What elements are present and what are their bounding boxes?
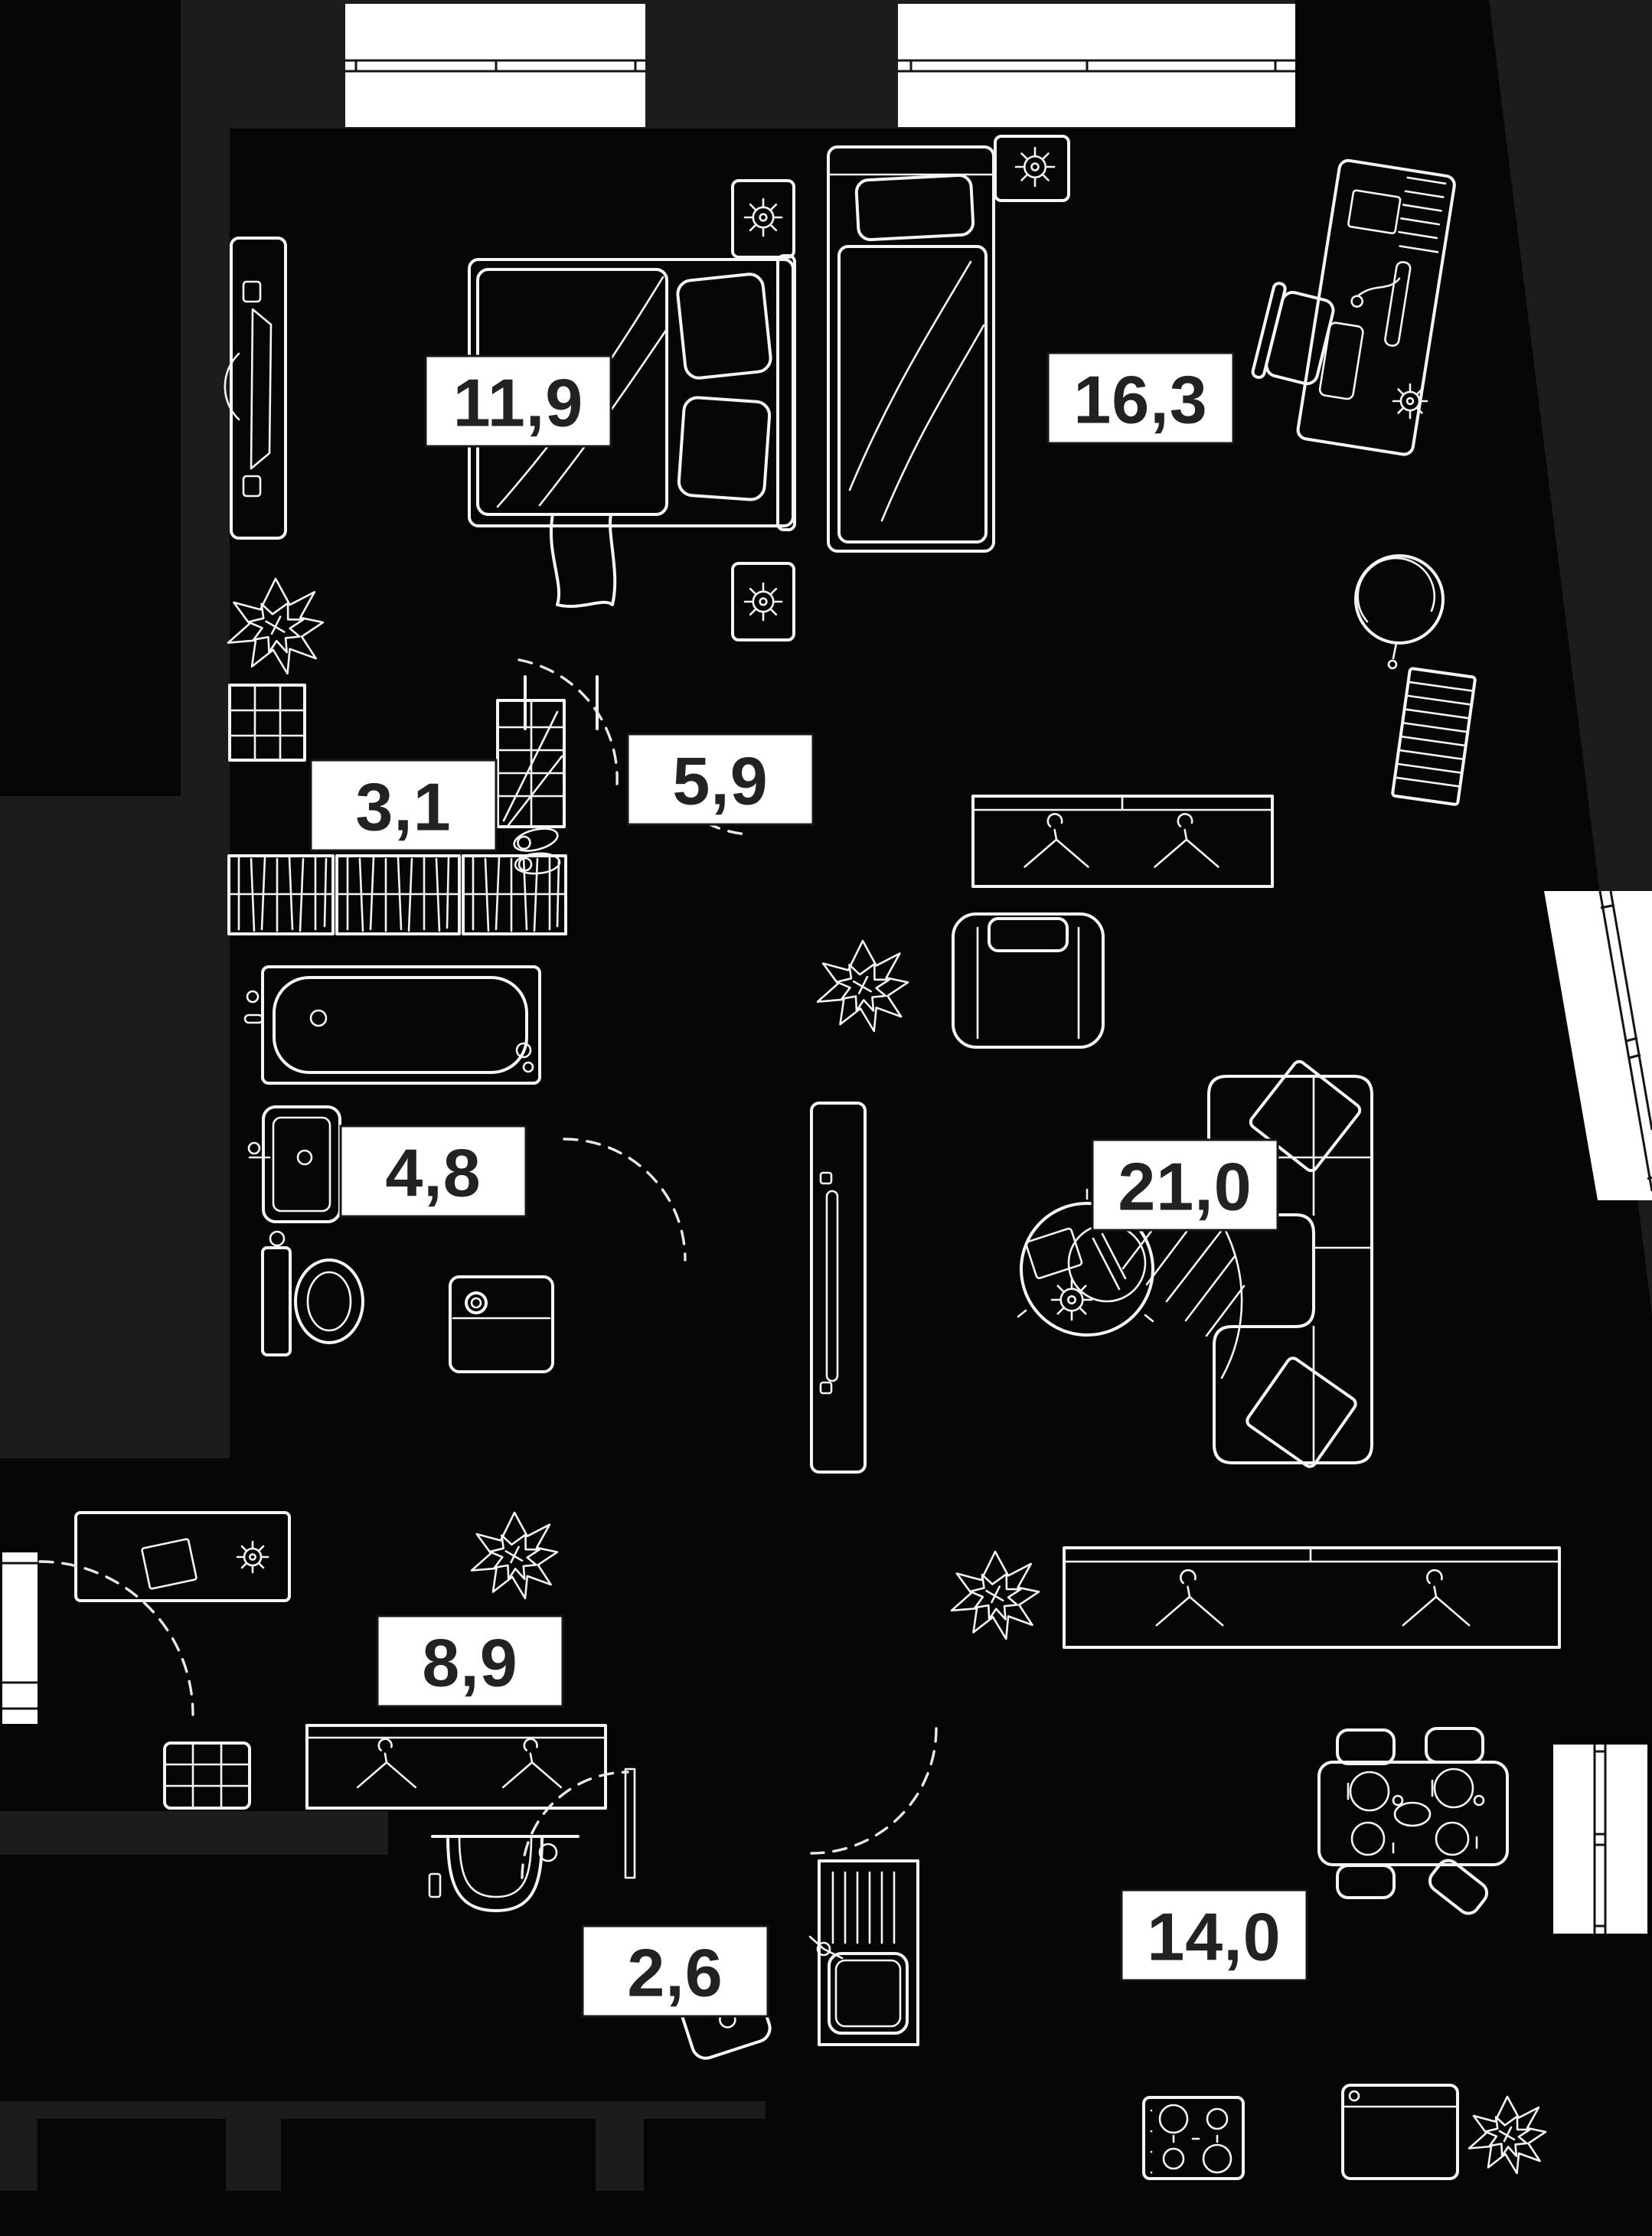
floor-plan-page: 11,9 16,3 3,1 5,9 4,8 21,0 8,9 2,6 14,0 bbox=[0, 0, 1652, 2236]
room-label-bedroom-2: 16,3 bbox=[1048, 353, 1233, 443]
svg-text:4,8: 4,8 bbox=[385, 1135, 481, 1211]
room-label-hallway: 8,9 bbox=[377, 1616, 563, 1706]
svg-text:8,9: 8,9 bbox=[422, 1625, 517, 1701]
adjacent-structure bbox=[38, 2119, 226, 2192]
adjacent-structure bbox=[644, 2119, 796, 2192]
floor-plan-canvas: 11,9 16,3 3,1 5,9 4,8 21,0 8,9 2,6 14,0 bbox=[0, 0, 1652, 2236]
svg-text:14,0: 14,0 bbox=[1147, 1899, 1281, 1975]
adjacent-structure bbox=[0, 1855, 429, 2101]
svg-text:21,0: 21,0 bbox=[1118, 1149, 1252, 1225]
adjacent-structure bbox=[281, 2119, 596, 2192]
window-kitchen bbox=[1553, 1745, 1647, 1934]
adjacent-structure bbox=[0, 0, 181, 796]
room-label-bedroom: 11,9 bbox=[426, 356, 611, 446]
room-label-kitchen: 14,0 bbox=[1121, 1890, 1307, 1980]
window-top-left bbox=[345, 4, 645, 127]
room-label-bathroom: 4,8 bbox=[341, 1126, 526, 1216]
building-silhouette bbox=[0, 0, 1652, 2236]
room-label-hall: 5,9 bbox=[628, 734, 813, 824]
svg-text:3,1: 3,1 bbox=[355, 769, 451, 845]
room-label-living-room: 21,0 bbox=[1092, 1140, 1278, 1230]
entry-door bbox=[2, 1552, 38, 1724]
svg-text:2,6: 2,6 bbox=[627, 1935, 723, 2011]
room-label-wc: 2,6 bbox=[583, 1926, 768, 2016]
svg-text:5,9: 5,9 bbox=[672, 743, 768, 819]
svg-text:16,3: 16,3 bbox=[1073, 362, 1207, 438]
svg-text:11,9: 11,9 bbox=[453, 365, 583, 441]
room-label-walk-in-closet: 3,1 bbox=[311, 760, 496, 850]
window-top-right bbox=[898, 4, 1295, 127]
